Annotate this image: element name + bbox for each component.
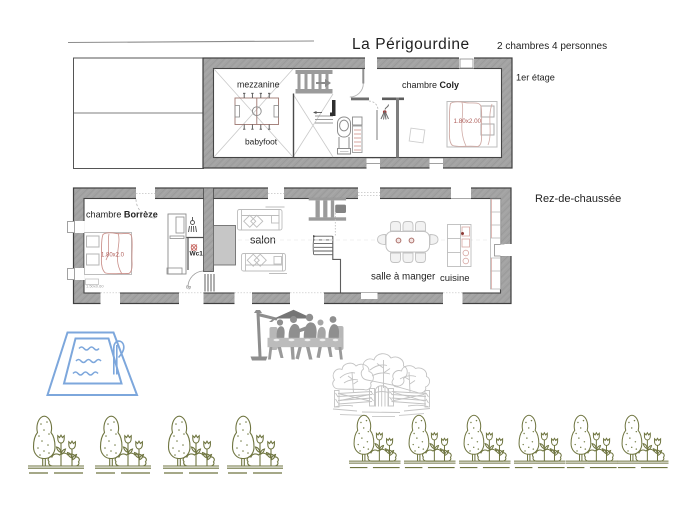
- svg-text:salle à manger: salle à manger: [371, 271, 436, 282]
- svg-text:Rez-de-chaussée: Rez-de-chaussée: [535, 193, 621, 205]
- svg-text:Wc1: Wc1: [190, 251, 204, 258]
- svg-text:2 chambres 4 personnes: 2 chambres 4 personnes: [497, 41, 607, 52]
- svg-text:1.80x2.00: 1.80x2.00: [454, 118, 482, 125]
- svg-text:1er étage: 1er étage: [516, 73, 555, 83]
- svg-text:La Périgourdine: La Périgourdine: [352, 36, 470, 53]
- svg-text:mezzanine: mezzanine: [237, 80, 280, 90]
- svg-text:1.80x2.0: 1.80x2.0: [101, 253, 125, 259]
- svg-text:chambre Borrèze: chambre Borrèze: [86, 210, 158, 220]
- svg-text:0p: 0p: [186, 285, 192, 290]
- svg-text:babyfoot: babyfoot: [245, 137, 278, 147]
- svg-text:salon: salon: [250, 235, 276, 247]
- svg-text:chambre Coly: chambre Coly: [402, 80, 459, 90]
- svg-text:cuisine: cuisine: [440, 273, 470, 284]
